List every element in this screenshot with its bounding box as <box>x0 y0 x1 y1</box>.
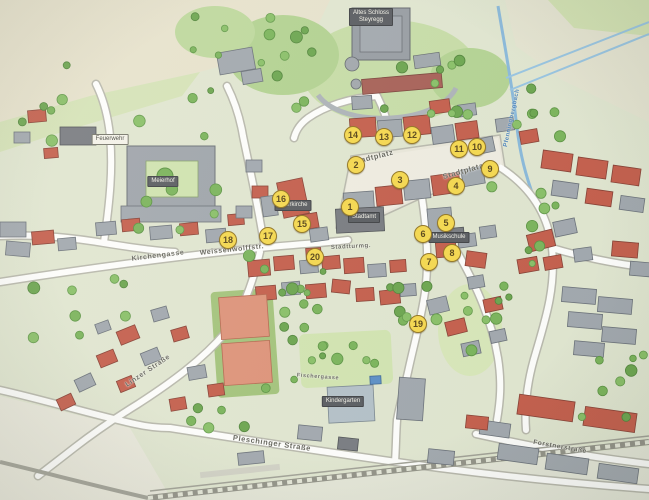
map-marker-18: 18 <box>219 231 237 249</box>
poi-label-kindergarten: Kindergarten <box>322 396 364 407</box>
town-map-photo: KirchengasseWeissenwolffstr.Stadtturmg.S… <box>0 0 649 500</box>
map-marker-4: 4 <box>447 177 465 195</box>
street-label-stadtplatz: Stadtplatz <box>442 161 485 181</box>
map-marker-10: 10 <box>468 138 486 156</box>
map-marker-20: 20 <box>306 248 324 266</box>
street-label-linzer-stra-e: Linzer Straße <box>124 354 171 389</box>
poi-label-feuerwehr: Feuerwehr <box>92 134 129 145</box>
map-marker-3: 3 <box>391 171 409 189</box>
map-marker-11: 11 <box>450 140 468 158</box>
map-marker-14: 14 <box>344 126 362 144</box>
poi-label-text2: Steyregg <box>359 17 383 23</box>
poi-label-altes-schloss: Altes SchlossSteyregg <box>349 8 393 26</box>
poi-label-text: Kindergarten <box>326 398 360 404</box>
poi-label-text: Stadtamt <box>352 214 376 220</box>
street-label-pleschinger-stra-e: Pleschinger Straße <box>232 433 311 453</box>
poi-label-text: Altes Schloss <box>353 10 389 16</box>
map-marker-6: 6 <box>414 225 432 243</box>
street-label-kirchengasse: Kirchengasse <box>131 249 185 262</box>
water-label-pfenningbergbach: Pfenningbergbach <box>503 88 521 147</box>
map-marker-8: 8 <box>443 244 461 262</box>
poi-label-text: Meierhof <box>151 178 174 184</box>
map-marker-16: 16 <box>272 190 290 208</box>
poi-label-text: Musikschule <box>432 234 465 240</box>
poi-label-musikschule: Musikschule <box>428 232 469 243</box>
map-marker-5: 5 <box>437 214 455 232</box>
map-marker-9: 9 <box>481 160 499 178</box>
map-marker-2: 2 <box>347 156 365 174</box>
map-marker-19: 19 <box>409 315 427 333</box>
poi-label-meierhof: Meierhof <box>147 176 178 187</box>
map-labels-overlay: KirchengasseWeissenwolffstr.Stadtturmg.S… <box>0 0 649 500</box>
street-label-stadtturmg: Stadtturmg. <box>331 243 372 251</box>
map-marker-13: 13 <box>375 128 393 146</box>
map-marker-12: 12 <box>403 126 421 144</box>
poi-label-text: Feuerwehr <box>96 136 125 142</box>
street-label-forstnerstra-e: Forstnerstraße <box>533 439 588 455</box>
map-marker-1: 1 <box>341 198 359 216</box>
map-marker-7: 7 <box>420 253 438 271</box>
street-label-fischergasse: Fischergasse <box>297 373 340 382</box>
map-marker-17: 17 <box>259 227 277 245</box>
map-marker-15: 15 <box>293 215 311 233</box>
